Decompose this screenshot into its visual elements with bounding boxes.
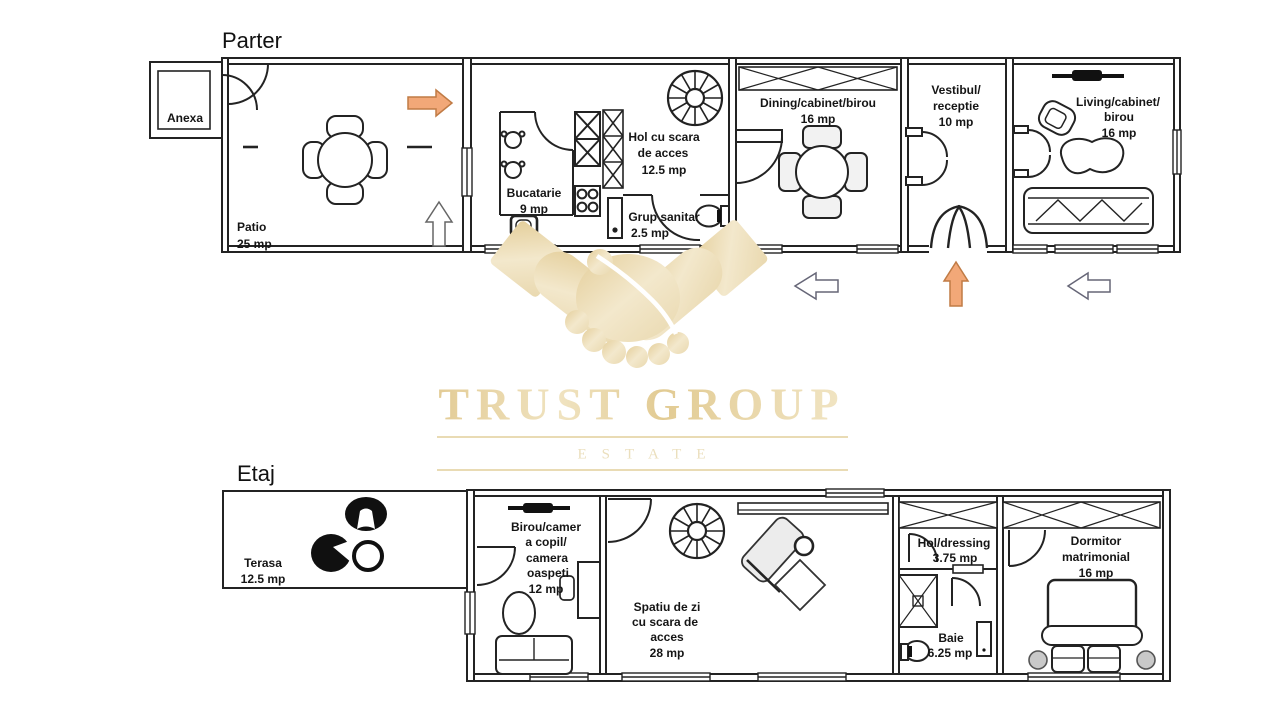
right-arrow-icon [408,90,452,116]
room-label-grup-sanitar: Grup sanitar [628,211,699,223]
spiral-staircase-etaj-icon [670,504,724,558]
room-label-vestibul-1: Vestibul/ [931,84,980,96]
room-label-living-2: birou [1104,111,1134,123]
kitchen-icons [500,112,600,236]
room-label-birou-2: a copil/ [525,536,566,548]
room-area-hol-scara: 12.5 mp [642,164,687,176]
left-arrow-icon-1 [795,273,838,299]
room-area-living: 16 mp [1102,127,1137,139]
room-label-spatiu-1: Spatiu de zi [634,601,701,613]
room-label-patio: Patio [237,221,266,233]
room-area-terasa: 12.5 mp [241,573,286,585]
room-area-patio: 25 mp [237,238,272,250]
watermark-brand: TRUST GROUP [438,378,845,431]
left-arrow-icon-2 [1068,273,1110,299]
room-area-vestibul: 10 mp [939,116,974,128]
room-area-dormitor: 16 mp [1079,567,1114,579]
parter-title: Parter [222,28,282,54]
room-label-bucatarie: Bucatarie [507,187,562,199]
room-label-dormitor-1: Dormitor [1071,535,1122,547]
room-area-birou: 12 mp [529,583,564,595]
spatiu-zi-icons [608,499,888,542]
watermark-subtitle: ESTATE [578,447,721,464]
dining-table-icon [779,126,867,218]
room-label-birou-1: Birou/camer [511,521,581,533]
room-label-dormitor-2: matrimonial [1062,551,1130,563]
room-label-anexa: Anexa [167,112,203,124]
room-area-dining: 16 mp [801,113,836,125]
room-label-hol-scara-2: de acces [638,147,689,159]
patio-table-icon [303,116,387,204]
room-label-living-1: Living/cabinet/ [1076,96,1160,108]
room-area-baie: 6.25 mp [928,647,973,659]
room-label-baie: Baie [938,632,963,644]
room-label-birou-4: oaspeti [527,567,569,579]
room-area-bucatarie: 9 mp [520,203,548,215]
room-label-birou-3: camera [526,552,568,564]
anexa-room [150,62,257,138]
up-arrow-orange-icon [944,262,968,306]
floorplan-canvas: Parter Anexa Patio 25 mp Bucatarie 9 mp … [0,0,1270,714]
watermark-divider-top [437,436,848,438]
sofa-birou-icon [496,636,572,674]
room-label-vestibul-2: receptie [933,100,979,112]
sofa-living-icon [1024,188,1153,233]
room-area-hol-dressing: 3.75 mp [933,552,978,564]
room-label-hol-scara-1: Hol cu scara [628,131,699,143]
stair-wall-panel [603,110,623,188]
room-label-hol-dressing: Hol/dressing [918,537,991,549]
lounge-chair-icon [739,514,825,610]
terasa-furniture-icons [311,497,387,572]
room-label-spatiu-3: acces [650,631,683,643]
up-arrow-outline-icon [426,202,452,246]
bed-icon [1029,580,1155,672]
room-label-dining: Dining/cabinet/birou [760,97,876,109]
handshake-logo-icon [489,218,770,368]
spiral-staircase-parter-icon [668,71,722,125]
vestibul-doors-icon [906,128,987,253]
room-label-terasa: Terasa [244,557,282,569]
etaj-title: Etaj [237,461,275,487]
room-label-spatiu-2: cu scara de [632,616,698,628]
room-area-spatiu: 28 mp [650,647,685,659]
room-area-grup-sanitar: 2.5 mp [631,227,669,239]
watermark-divider-bottom [437,469,848,471]
